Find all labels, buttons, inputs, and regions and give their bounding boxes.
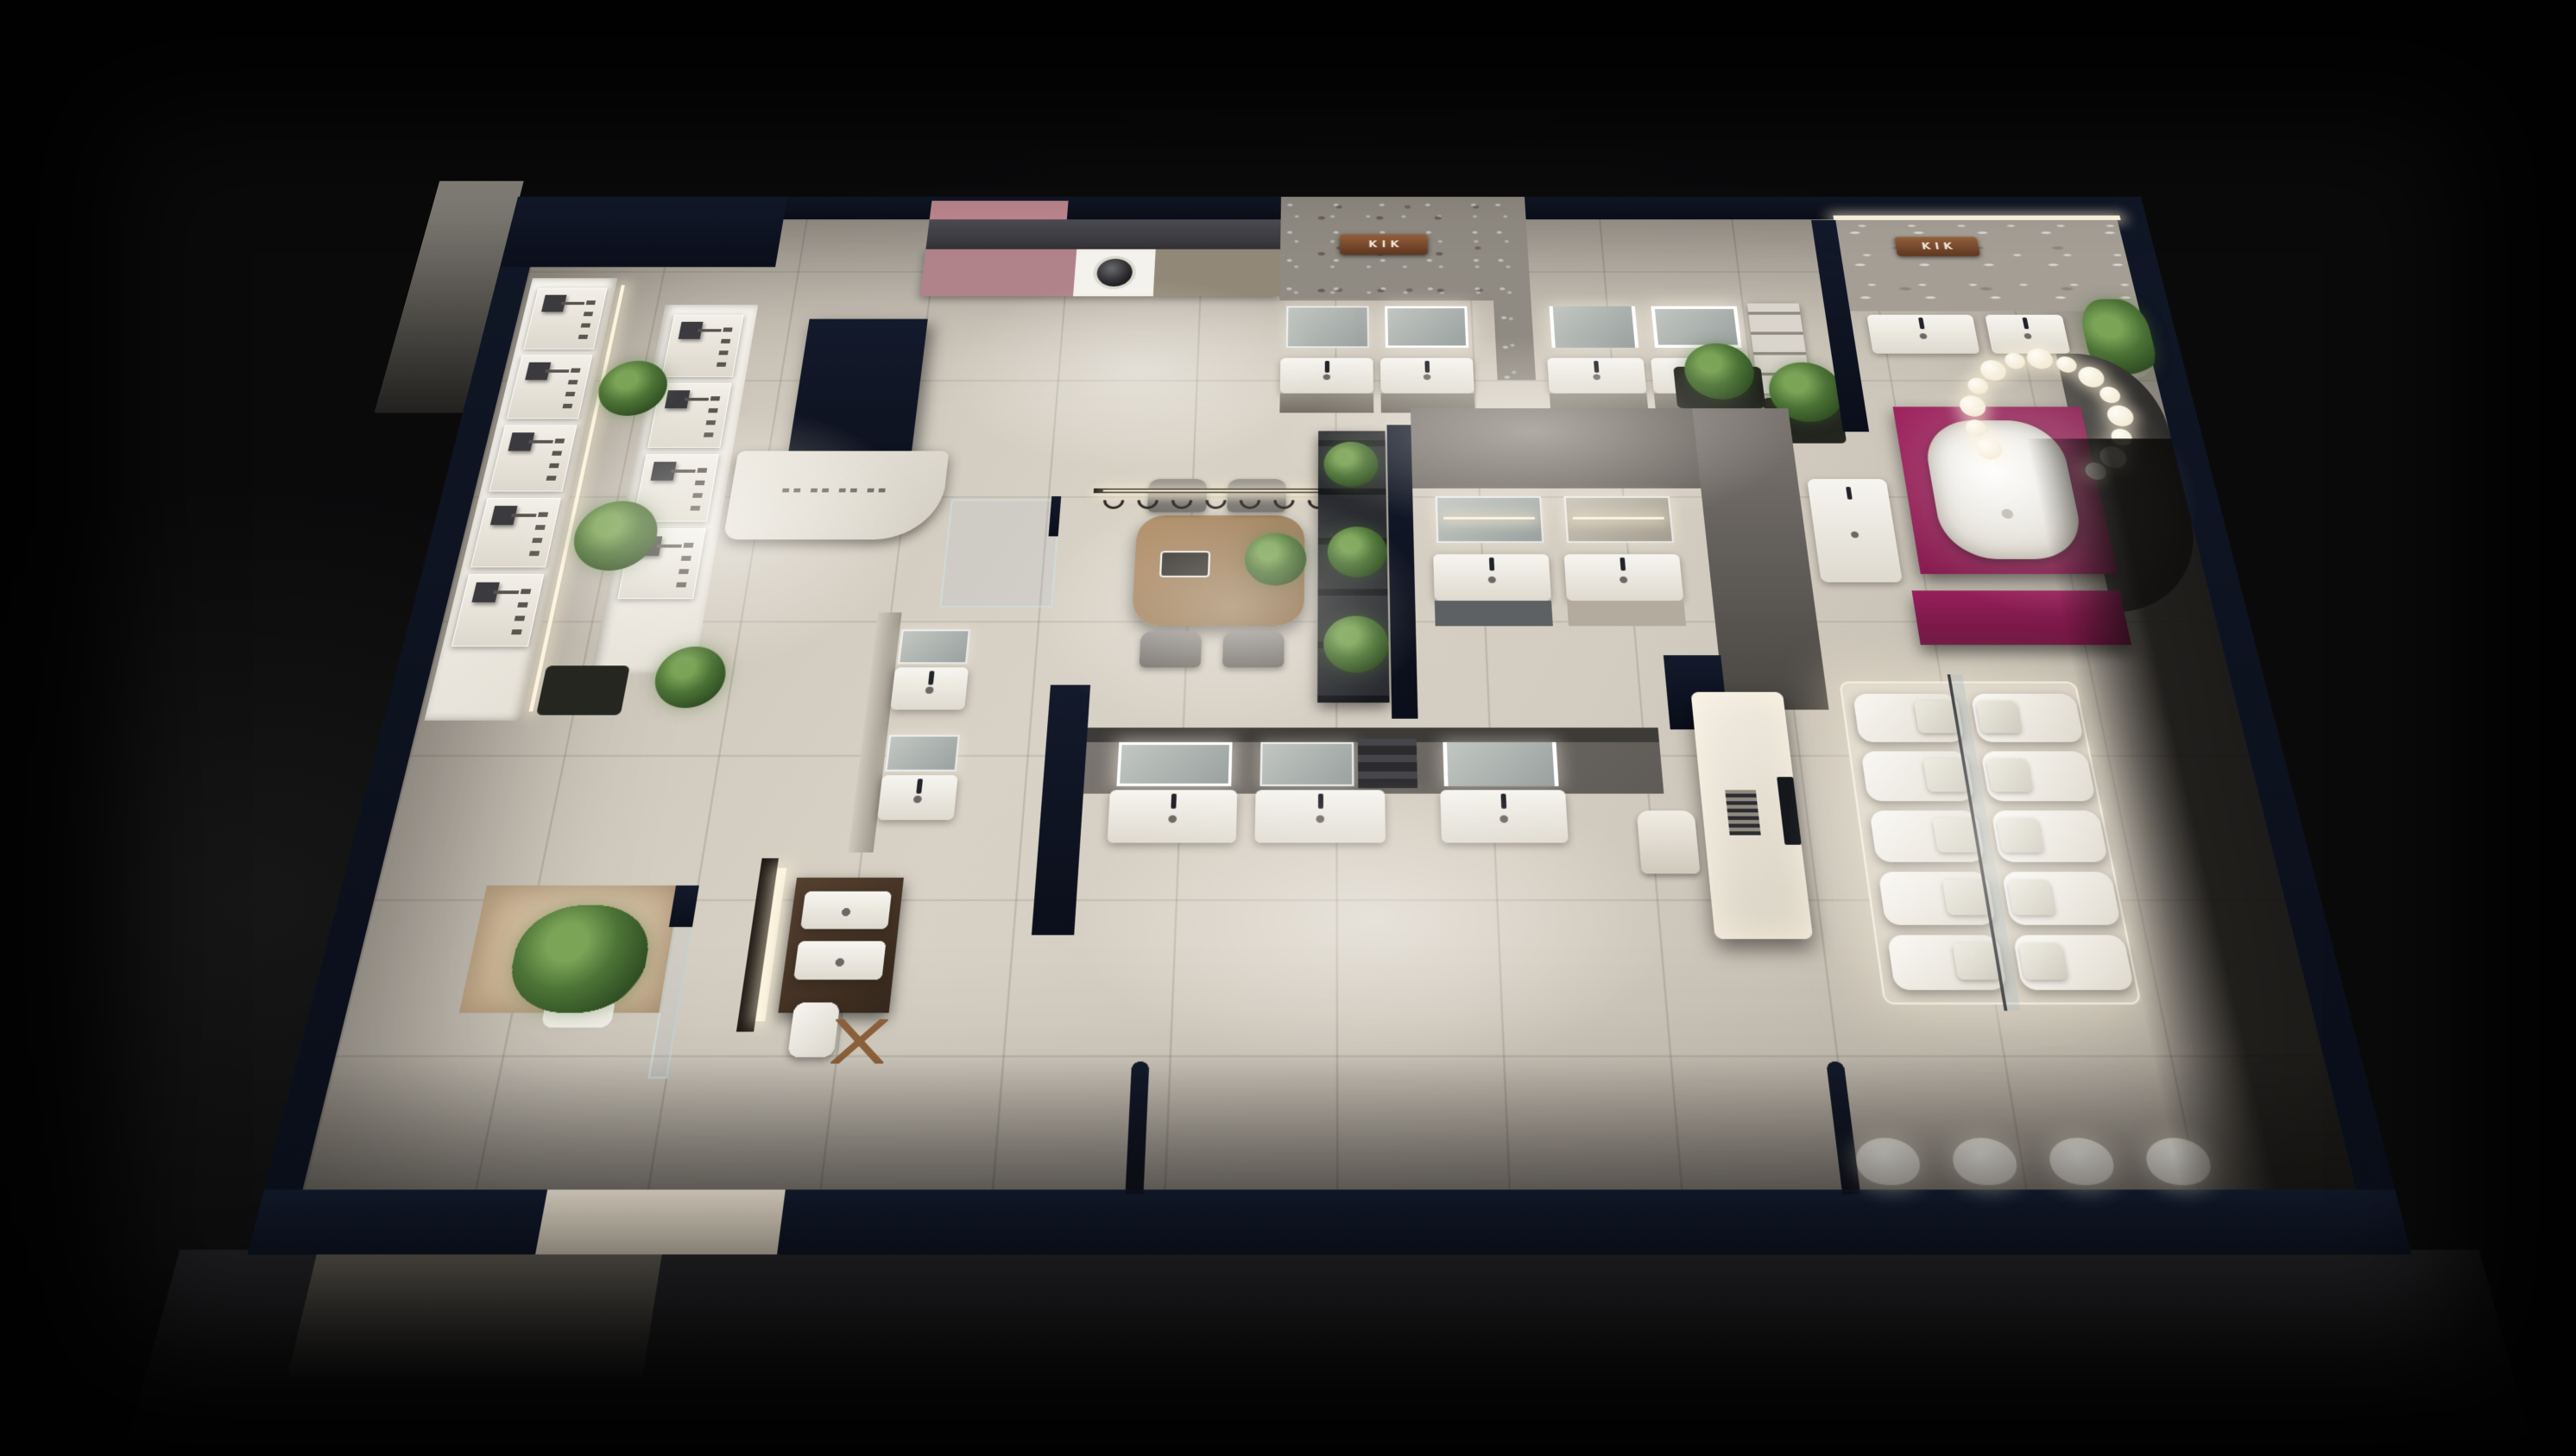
far-white-vanity: [1807, 479, 1903, 583]
consult-chair-3: [1140, 631, 1203, 667]
vanity-mirror-1: [1286, 306, 1369, 348]
chandelier-sphere: [2076, 367, 2106, 388]
left-pair-basin-2: [877, 775, 958, 820]
toilet-display-unit: [2002, 872, 2122, 925]
chandelier-sphere: [2105, 405, 2136, 426]
lower-bay-mirror-2: [1260, 742, 1354, 786]
wood-vanity-basin-1: [800, 892, 892, 930]
chandelier-sphere: [2098, 446, 2129, 468]
wooden-stool: [830, 1019, 888, 1064]
toilet-display-unit: [1980, 751, 2096, 801]
island-keypad: [1725, 790, 1761, 835]
shelf-plant-1: [1323, 442, 1378, 487]
island-seat: [1637, 810, 1701, 873]
left-pair-mirror-1: [898, 629, 970, 664]
island-cabinet-1: [1435, 601, 1553, 626]
island-mirror-led-1: [1443, 517, 1535, 520]
toilet-display-unit: [2012, 935, 2134, 990]
wood-vanity-basin-2: [793, 941, 886, 980]
toilet-display-unit: [1887, 935, 2007, 990]
left-pair-basin-1: [890, 667, 969, 709]
brand-sign-top-right: KIK: [1894, 237, 1980, 256]
urinal: [2046, 1138, 2118, 1185]
chandelier-sphere: [1964, 419, 1987, 436]
reception-counter: [723, 451, 950, 540]
vanity-basin-3: [1547, 358, 1646, 394]
shower-fixture-column: [523, 288, 607, 350]
chandelier-sphere: [2084, 463, 2108, 480]
shower-fixture-column: [470, 498, 561, 568]
pendant-hook: [1133, 488, 1163, 513]
lower-bay-shelf-2: [1358, 739, 1417, 788]
chandelier-sphere: [2025, 349, 2055, 369]
laundry-wall-panel-pink: [930, 201, 1069, 221]
showroom-render: KIK KIK: [0, 0, 2576, 1456]
pendant-hook: [1202, 488, 1231, 513]
toilet-display-unit: [1853, 694, 1965, 742]
table-tray: [1159, 551, 1210, 577]
pendant-hook: [1167, 488, 1196, 513]
laundry-counter: [925, 219, 1280, 249]
bubble-ring-chandelier: [1946, 348, 2152, 492]
pendant-hook: [1269, 488, 1298, 513]
island-mirror-cabinet-1: [1436, 496, 1544, 543]
brand-sign-top-right-text: KIK: [1916, 242, 1958, 252]
lower-bay-basin-2: [1254, 790, 1386, 842]
vanity-cabinet-1: [1279, 394, 1373, 413]
chandelier-sphere: [1979, 360, 2008, 381]
island-mirror-cabinet-2: [1563, 496, 1674, 543]
lower-bay-mirror-1: [1116, 742, 1232, 786]
shelf-plant-2: [1328, 526, 1387, 577]
marble-feature-wall: [1834, 220, 2139, 312]
vanity-mirror-2: [1385, 306, 1468, 348]
chandelier-sphere: [2098, 387, 2122, 403]
bulkhead-top-left: [500, 197, 787, 267]
brand-sign-top-center-text: KIK: [1364, 239, 1404, 249]
island-basin-2: [1564, 554, 1684, 601]
consult-chair-4: [1222, 631, 1285, 667]
chandelier-sphere: [2003, 353, 2026, 369]
shower-fixture-column: [661, 315, 743, 377]
pendant-hook: [1099, 488, 1128, 513]
lower-bay-basin-1: [1107, 790, 1237, 842]
exterior-entry-ground: [287, 1254, 662, 1375]
reception-counter-brand-lettering: [782, 488, 896, 493]
entrance-opening: [535, 1189, 786, 1254]
island-mirror-led-2: [1573, 517, 1664, 520]
chandelier-sphere: [1958, 395, 1987, 416]
floorplan-plane: KIK KIK: [248, 197, 2412, 1254]
magenta-desk: [1912, 590, 2131, 645]
toilet-display-unit: [1971, 694, 2085, 742]
shower-fixture-column: [489, 425, 577, 491]
shelf-plant-3: [1323, 616, 1389, 673]
vanity-mirror-3: [1549, 306, 1638, 348]
table-plant: [1244, 533, 1306, 586]
planter-box: [536, 665, 630, 715]
toilet-display-unit: [1991, 810, 2108, 862]
walk-in-shower-enclosure: [939, 500, 1061, 608]
vanity-basin-1: [1280, 358, 1373, 394]
lower-bay-mirror-3: [1443, 742, 1558, 786]
urinal: [1853, 1138, 1923, 1185]
toilet-display-unit: [1869, 810, 1985, 862]
toilet-display-unit: [1878, 872, 1997, 925]
pendant-hook: [1235, 488, 1265, 513]
lower-bay-basin-3: [1440, 790, 1569, 842]
pendant-hooks: [1096, 492, 1337, 509]
brand-sign-top-center: KIK: [1340, 234, 1428, 255]
urinal: [1949, 1138, 2020, 1185]
shower-fixture-column: [451, 574, 545, 646]
shower-fixture-column: [507, 355, 593, 419]
chandelier-sphere: [2055, 356, 2079, 373]
chandelier-sphere: [2110, 429, 2134, 446]
urinal-row: [1853, 1138, 2269, 1194]
island-basin-1: [1433, 554, 1551, 601]
left-pair-mirror-2: [885, 734, 960, 771]
vanity-mirror-4: [1651, 306, 1741, 348]
urinal: [2142, 1138, 2214, 1185]
chandelier-sphere: [1973, 438, 2004, 459]
island-cabinet-2: [1567, 601, 1686, 626]
chandelier-sphere: [1967, 378, 1990, 394]
vanity-basin-2: [1380, 358, 1474, 394]
toilet-display-unit: [1861, 751, 1975, 801]
